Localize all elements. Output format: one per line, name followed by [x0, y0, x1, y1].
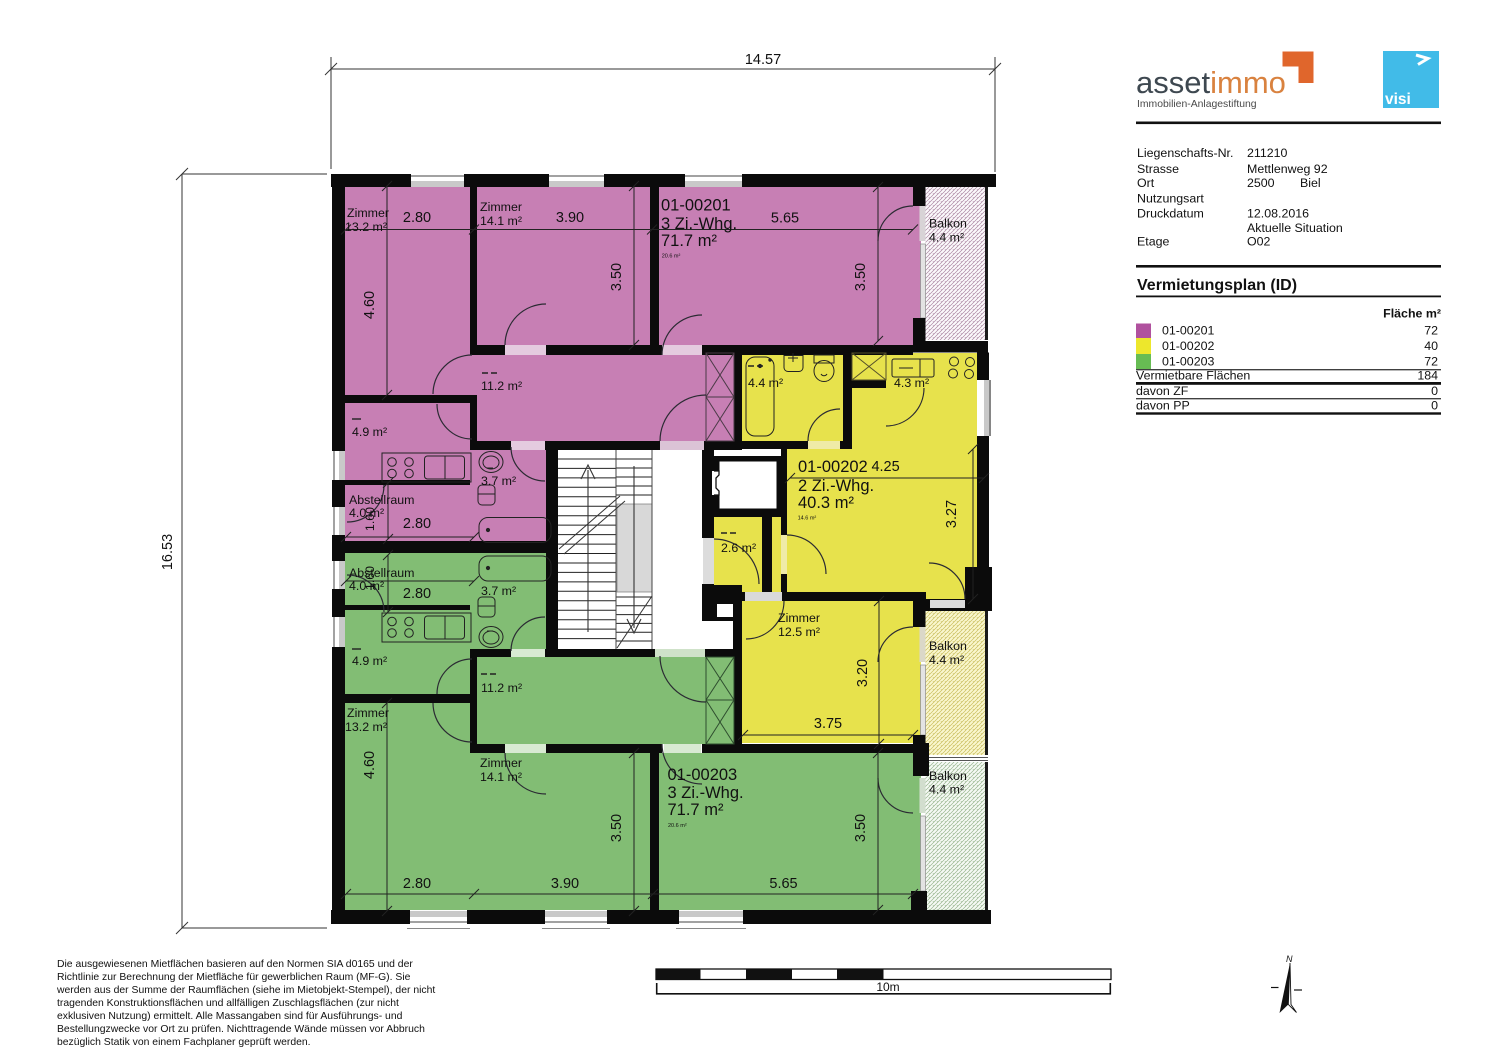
svg-text:3.90: 3.90: [556, 210, 584, 226]
svg-text:Etage: Etage: [1137, 234, 1169, 248]
svg-text:Strasse: Strasse: [1137, 162, 1179, 176]
svg-text:4.9 m²: 4.9 m²: [352, 425, 387, 439]
svg-text:4.4 m²: 4.4 m²: [929, 783, 964, 797]
svg-text:exklusiven Nutzung) ermittelt.: exklusiven Nutzung) ermittelt. Alle Mass…: [57, 1011, 403, 1022]
svg-text:Druckdatum: Druckdatum: [1137, 207, 1204, 221]
svg-text:4.60: 4.60: [362, 291, 378, 319]
svg-text:Zimmer: Zimmer: [778, 611, 820, 625]
svg-text:5.65: 5.65: [771, 211, 799, 227]
svg-text:Zimmer: Zimmer: [347, 206, 389, 220]
svg-text:01-00201: 01-00201: [1162, 324, 1214, 338]
svg-text:Fläche m²: Fläche m²: [1383, 307, 1441, 321]
svg-text:20.6 m²: 20.6 m²: [668, 823, 687, 829]
svg-text:Balkon: Balkon: [929, 769, 967, 783]
svg-text:01-00202: 01-00202: [1162, 339, 1214, 353]
svg-text:2.80: 2.80: [403, 516, 431, 532]
svg-text:Abstellraum: Abstellraum: [349, 566, 414, 580]
svg-text:2.80: 2.80: [403, 210, 431, 226]
svg-text:Vermietungsplan (ID): Vermietungsplan (ID): [1137, 277, 1297, 294]
svg-text:2500: 2500: [1247, 176, 1275, 190]
svg-text:10m: 10m: [876, 980, 899, 994]
svg-text:14.57: 14.57: [745, 52, 781, 68]
svg-text:Richtlinie zur Berechnung der: Richtlinie zur Berechnung der Mietfläche…: [57, 972, 411, 983]
svg-text:71.7 m²: 71.7 m²: [661, 232, 717, 250]
svg-text:5.65: 5.65: [769, 876, 797, 892]
svg-text:2.6 m²: 2.6 m²: [721, 541, 756, 555]
svg-text:Biel: Biel: [1300, 176, 1321, 190]
svg-text:71.7 m²: 71.7 m²: [668, 801, 724, 819]
svg-text:2 Zi.-Whg.: 2 Zi.-Whg.: [798, 477, 874, 495]
svg-text:3.50: 3.50: [853, 263, 869, 291]
svg-text:01-00203: 01-00203: [1162, 355, 1214, 369]
svg-text:4.4 m²: 4.4 m²: [929, 231, 964, 245]
svg-text:01-00203: 01-00203: [668, 766, 738, 784]
svg-text:tragenden Konstruktionsflächen: tragenden Konstruktionsflächen und allfä…: [57, 998, 399, 1009]
svg-text:16.53: 16.53: [160, 534, 176, 570]
svg-text:Nutzungsart: Nutzungsart: [1137, 191, 1204, 205]
svg-text:4.4 m²: 4.4 m²: [929, 653, 964, 667]
svg-text:211210: 211210: [1247, 146, 1288, 160]
svg-text:assetimmo: assetimmo: [1136, 65, 1286, 100]
svg-text:3.75: 3.75: [814, 716, 842, 732]
svg-text:Ort: Ort: [1137, 176, 1155, 190]
svg-text:3.7 m²: 3.7 m²: [481, 584, 516, 598]
svg-text:1.60: 1.60: [363, 566, 377, 590]
svg-text:2.80: 2.80: [403, 586, 431, 602]
svg-text:Liegenschafts-Nr.: Liegenschafts-Nr.: [1137, 146, 1233, 160]
svg-text:Immobilien-Anlagestiftung: Immobilien-Anlagestiftung: [1137, 99, 1257, 110]
svg-text:01-00201: 01-00201: [661, 197, 731, 215]
svg-text:Die ausgewiesenen Mietflächen: Die ausgewiesenen Mietflächen basieren a…: [57, 959, 413, 970]
svg-text:12.08.2016: 12.08.2016: [1247, 207, 1309, 221]
svg-text:40: 40: [1424, 339, 1438, 353]
svg-text:1.60: 1.60: [363, 507, 377, 531]
svg-text:Bestellungzwecke vor Ort zu pr: Bestellungzwecke vor Ort zu prüfen. Nich…: [57, 1024, 425, 1035]
svg-text:Zimmer: Zimmer: [347, 706, 389, 720]
svg-text:14.1 m²: 14.1 m²: [480, 770, 522, 784]
svg-text:3.20: 3.20: [855, 659, 871, 687]
svg-text:0: 0: [1431, 399, 1438, 413]
svg-text:12.5 m²: 12.5 m²: [778, 625, 820, 639]
svg-text:4.4 m²: 4.4 m²: [748, 376, 783, 390]
svg-text:13.2 m²: 13.2 m²: [345, 220, 387, 234]
svg-text:184: 184: [1417, 369, 1438, 383]
svg-text:0: 0: [1431, 384, 1438, 398]
svg-text:Balkon: Balkon: [929, 217, 967, 231]
svg-text:11.2 m²: 11.2 m²: [481, 379, 522, 393]
svg-text:visi: visi: [1385, 91, 1411, 108]
svg-text:Balkon: Balkon: [929, 639, 967, 653]
svg-text:3.27: 3.27: [944, 500, 960, 528]
svg-text:3.7 m²: 3.7 m²: [481, 474, 516, 488]
svg-text:20.6 m²: 20.6 m²: [662, 254, 681, 260]
svg-text:4.25: 4.25: [871, 459, 899, 475]
svg-text:davon ZF: davon ZF: [1136, 384, 1189, 398]
svg-text:72: 72: [1424, 355, 1438, 369]
svg-text:2.80: 2.80: [403, 876, 431, 892]
svg-text:4.9 m²: 4.9 m²: [352, 654, 387, 668]
svg-text:N: N: [1286, 954, 1293, 964]
svg-text:Zimmer: Zimmer: [480, 756, 522, 770]
svg-text:3 Zi.-Whg.: 3 Zi.-Whg.: [661, 215, 737, 233]
svg-text:14.1 m²: 14.1 m²: [480, 214, 522, 228]
svg-text:Aktuelle Situation: Aktuelle Situation: [1247, 221, 1343, 235]
svg-text:3.90: 3.90: [551, 876, 579, 892]
svg-text:01-00202: 01-00202: [798, 458, 868, 476]
svg-text:bezüglich Statik von einem Fac: bezüglich Statik von einem Fachplaner ge…: [57, 1037, 311, 1048]
svg-text:Abstellraum: Abstellraum: [349, 493, 414, 507]
svg-text:Vermietbare Flächen: Vermietbare Flächen: [1136, 369, 1250, 383]
svg-text:4.60: 4.60: [362, 751, 378, 779]
svg-text:O02: O02: [1247, 234, 1271, 248]
svg-text:14.6 m²: 14.6 m²: [798, 516, 817, 522]
svg-text:3 Zi.-Whg.: 3 Zi.-Whg.: [668, 784, 744, 802]
svg-text:Zimmer: Zimmer: [480, 200, 522, 214]
svg-text:4.3 m²: 4.3 m²: [894, 376, 929, 390]
svg-text:13.2 m²: 13.2 m²: [345, 720, 387, 734]
svg-text:davon PP: davon PP: [1136, 399, 1190, 413]
svg-text:11.2 m²: 11.2 m²: [481, 681, 522, 695]
svg-text:3.50: 3.50: [853, 814, 869, 842]
svg-text:werden aus der Summe der Raumf: werden aus der Summe der Raumflächen (si…: [56, 985, 435, 996]
svg-text:3.50: 3.50: [609, 263, 625, 291]
svg-text:40.3 m²: 40.3 m²: [798, 494, 854, 512]
svg-text:Mettlenweg 92: Mettlenweg 92: [1247, 162, 1328, 176]
svg-text:3.50: 3.50: [609, 814, 625, 842]
svg-text:72: 72: [1424, 324, 1438, 338]
